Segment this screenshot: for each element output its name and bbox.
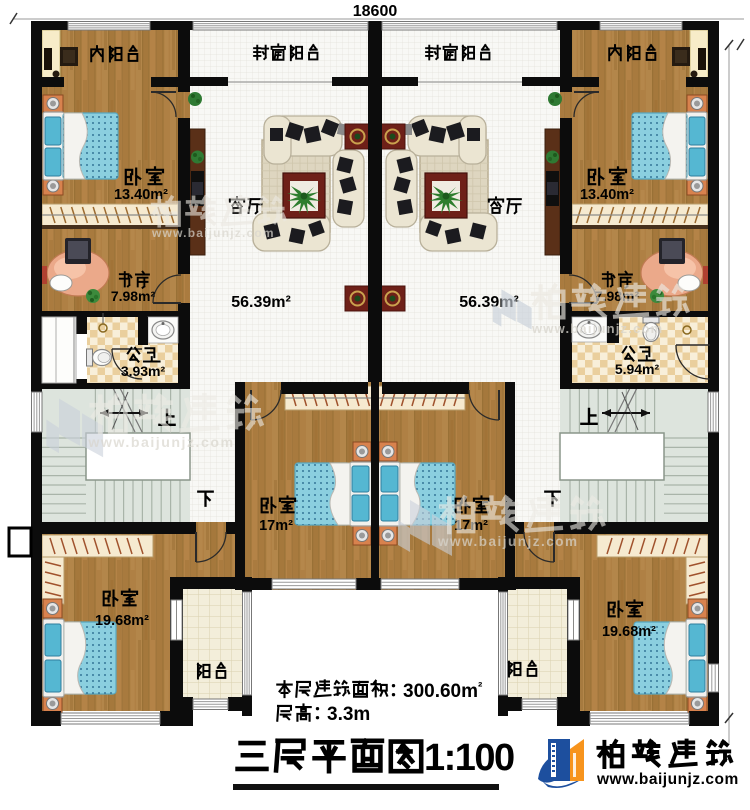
- svg-text:19.68m²: 19.68m²: [602, 624, 656, 640]
- svg-text:7.98m²: 7.98m²: [111, 288, 156, 304]
- svg-text:5.94m²: 5.94m²: [615, 361, 660, 377]
- svg-text:19.68m²: 19.68m²: [95, 613, 149, 629]
- svg-text:1:100: 1:100: [424, 737, 514, 779]
- svg-text:300.60m: 300.60m: [403, 681, 478, 702]
- svg-text:3.93m²: 3.93m²: [121, 363, 166, 379]
- svg-text:²: ²: [478, 679, 483, 694]
- svg-text:www.baijunjz.com: www.baijunjz.com: [531, 321, 663, 336]
- svg-text:56.39m²: 56.39m²: [231, 294, 291, 311]
- svg-text:17m²: 17m²: [259, 518, 293, 534]
- svg-text:13.40m²: 13.40m²: [580, 187, 634, 203]
- svg-text:www.baijunjz.com: www.baijunjz.com: [437, 534, 579, 549]
- svg-text:18600: 18600: [353, 3, 398, 20]
- svg-text:www.baijunjz.com: www.baijunjz.com: [151, 226, 275, 240]
- svg-text:www.baijunjz.com: www.baijunjz.com: [596, 771, 739, 788]
- svg-text:3.3m: 3.3m: [327, 704, 370, 725]
- svg-text:www.baijunjz.com: www.baijunjz.com: [87, 435, 234, 451]
